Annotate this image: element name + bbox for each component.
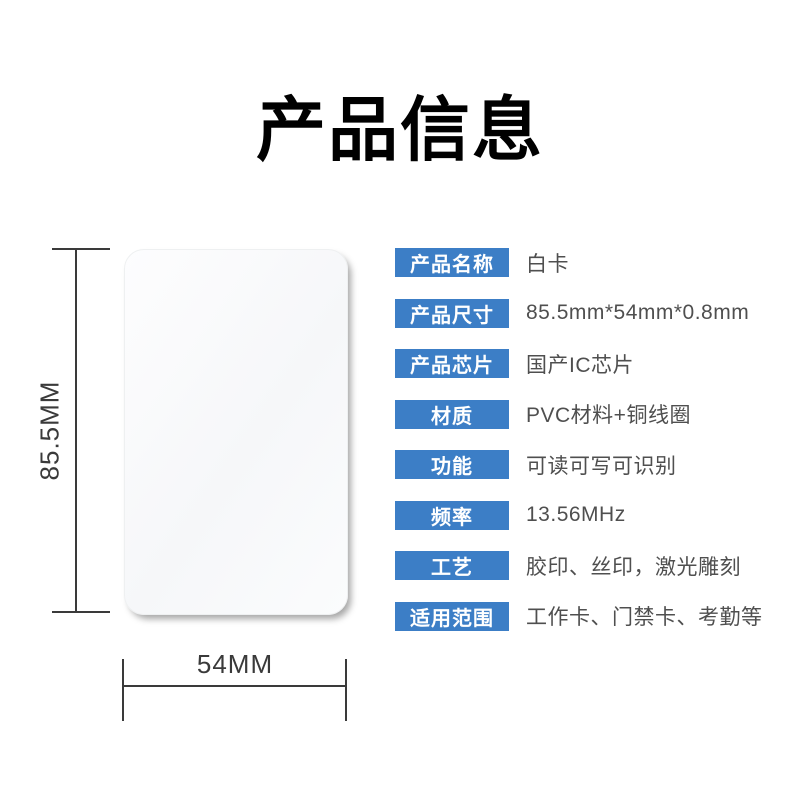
spec-row-craft: 工艺 胶印、丝印，激光雕刻 — [395, 551, 763, 580]
spec-row-frequency: 频率 13.56MHz — [395, 501, 763, 530]
spec-value: 白卡 — [526, 248, 569, 278]
spec-label-badge: 频率 — [395, 501, 509, 530]
spec-row-application: 适用范围 工作卡、门禁卡、考勤等 — [395, 602, 763, 631]
spec-label-badge: 产品芯片 — [395, 349, 509, 378]
page-title: 产品信息 — [0, 92, 800, 168]
spec-value: 工作卡、门禁卡、考勤等 — [526, 601, 763, 631]
spec-label-badge: 材质 — [395, 400, 509, 429]
spec-value: 13.56MHz — [526, 503, 626, 527]
spec-label-badge: 产品名称 — [395, 248, 509, 277]
height-dimension-cap-top — [52, 248, 110, 250]
spec-row-product-name: 产品名称 白卡 — [395, 248, 763, 277]
spec-label-badge: 功能 — [395, 450, 509, 479]
spec-value: 国产IC芯片 — [526, 349, 634, 379]
spec-label-badge: 适用范围 — [395, 602, 509, 631]
spec-value: 胶印、丝印，激光雕刻 — [526, 551, 741, 581]
spec-value: 85.5mm*54mm*0.8mm — [526, 301, 749, 325]
width-dimension-line — [123, 685, 347, 687]
spec-row-function: 功能 可读可写可识别 — [395, 450, 763, 479]
height-dimension-line — [75, 249, 77, 613]
spec-label-badge: 工艺 — [395, 551, 509, 580]
spec-row-product-chip: 产品芯片 国产IC芯片 — [395, 349, 763, 378]
height-dimension-label: 85.5MM — [37, 378, 64, 484]
height-dimension-cap-bottom — [52, 611, 110, 613]
spec-row-product-size: 产品尺寸 85.5mm*54mm*0.8mm — [395, 299, 763, 328]
spec-row-material: 材质 PVC材料+铜线圈 — [395, 400, 763, 429]
width-dimension-label: 54MM — [123, 649, 347, 680]
spec-list: 产品名称 白卡 产品尺寸 85.5mm*54mm*0.8mm 产品芯片 国产IC… — [395, 248, 763, 631]
spec-label-badge: 产品尺寸 — [395, 299, 509, 328]
spec-value: PVC材料+铜线圈 — [526, 399, 691, 429]
spec-value: 可读可写可识别 — [526, 450, 677, 480]
product-card-image — [124, 249, 348, 615]
product-info-page: 产品信息 85.5MM 54MM 产品名称 白卡 产品尺寸 85.5mm*54m… — [0, 0, 800, 800]
